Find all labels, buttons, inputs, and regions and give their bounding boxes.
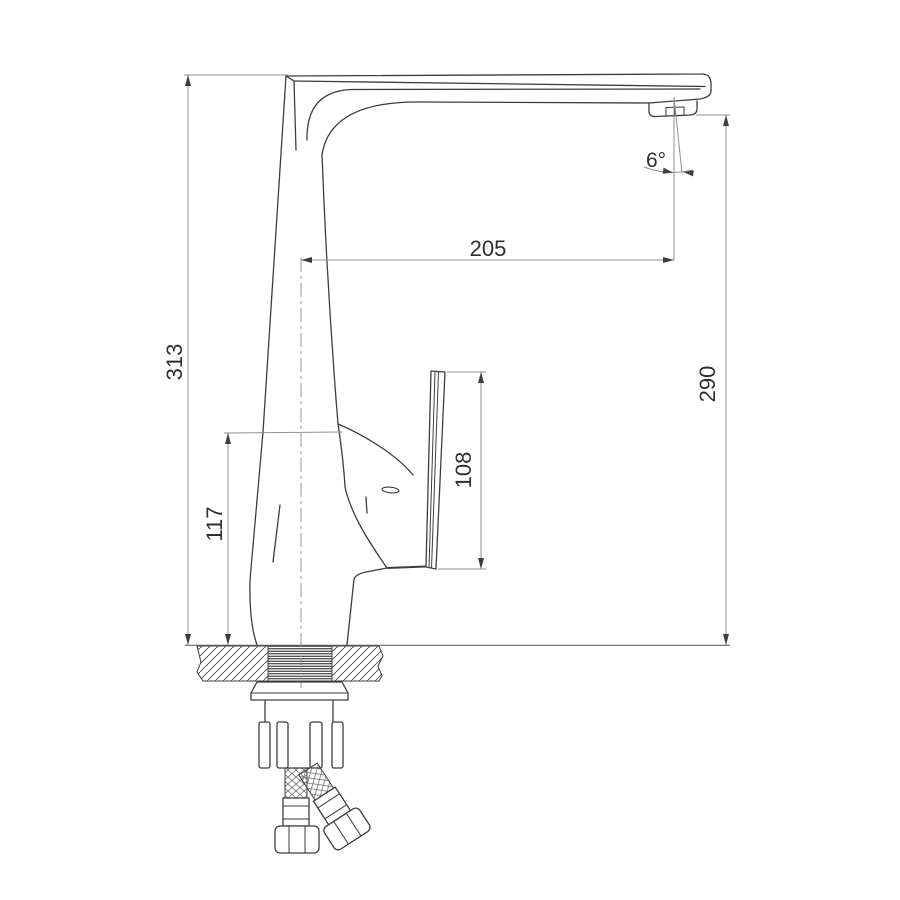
- mounting-collar: [259, 700, 343, 768]
- faucet-technical-drawing: 313 117 108 290 205 6°: [0, 0, 900, 900]
- arrow-down: [478, 558, 484, 569]
- dim-handle-span: 108: [438, 372, 486, 569]
- dim-label-313: 313: [162, 344, 187, 381]
- hose-ferrule: [283, 798, 309, 826]
- threaded-shank: [268, 646, 332, 681]
- dim-outlet-height: 290: [695, 115, 730, 645]
- extension-line: [224, 432, 342, 433]
- dim-label-205: 205: [470, 236, 507, 261]
- dim-label-108: 108: [451, 452, 476, 489]
- dim-spray-angle: 6°: [644, 97, 694, 260]
- arrow-up: [225, 433, 231, 444]
- arrow-up: [185, 75, 191, 86]
- countertop-section: [185, 645, 730, 681]
- angle-label-6deg: 6°: [646, 149, 666, 172]
- collar-prong-4: [332, 722, 343, 768]
- spout-inner-radius: [307, 89, 700, 140]
- arrow-up: [723, 115, 729, 126]
- under-lever-ledge: [387, 567, 426, 569]
- collar-prong-3: [310, 722, 322, 768]
- tilted-spray-line: [674, 97, 682, 173]
- arrow-down: [185, 634, 191, 645]
- arrow-down: [225, 634, 231, 645]
- spout-underside-column-right: [322, 102, 649, 424]
- column-left-edge: [250, 76, 286, 645]
- arrow-left: [301, 257, 312, 263]
- mounting-hardware: [251, 682, 348, 768]
- hose-hex-nut: [275, 826, 319, 853]
- base-right-edge: [347, 568, 387, 645]
- spout-inner-edge: [294, 81, 296, 150]
- collar-body: [265, 700, 333, 768]
- arrow-up: [478, 372, 484, 383]
- arrow-down: [723, 634, 729, 645]
- column-inner-line: [273, 505, 280, 562]
- countertop-hatch-right: [332, 646, 383, 681]
- dim-overall-height: 313: [162, 75, 288, 645]
- spout-face-line: [294, 81, 705, 87]
- collar-prong-2: [277, 722, 288, 768]
- dim-spout-reach: 205: [301, 236, 674, 263]
- aerator-housing: [649, 101, 697, 117]
- arrow-right: [663, 257, 674, 263]
- dim-body-height: 117: [202, 432, 342, 645]
- collar-prong-1: [259, 722, 270, 768]
- valve-housing-top: [338, 424, 413, 475]
- drawing-svg: 313 117 108 290 205 6°: [0, 0, 900, 900]
- housing-joint-line: [366, 497, 367, 513]
- countertop-hatch-left: [197, 646, 268, 681]
- mounting-nut: [251, 682, 348, 700]
- spout-corner-bevel: [286, 76, 294, 81]
- cartridge-cap: [382, 486, 399, 493]
- faucet-handle-lever: [426, 371, 445, 569]
- aerator: [649, 101, 697, 117]
- dim-label-117: 117: [202, 506, 227, 541]
- dim-label-290: 290: [695, 366, 720, 403]
